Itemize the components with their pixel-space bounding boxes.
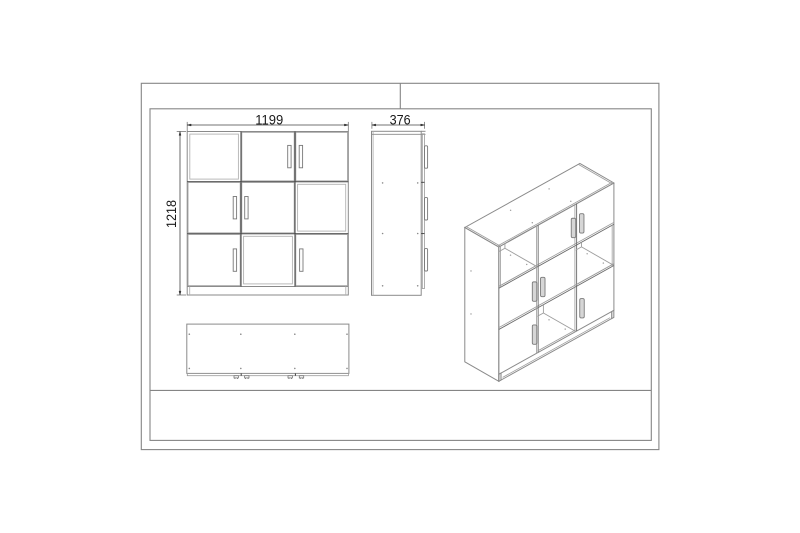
svg-text:1218: 1218 (163, 200, 179, 228)
svg-text:376: 376 (390, 111, 411, 127)
svg-text:1199: 1199 (255, 111, 283, 127)
